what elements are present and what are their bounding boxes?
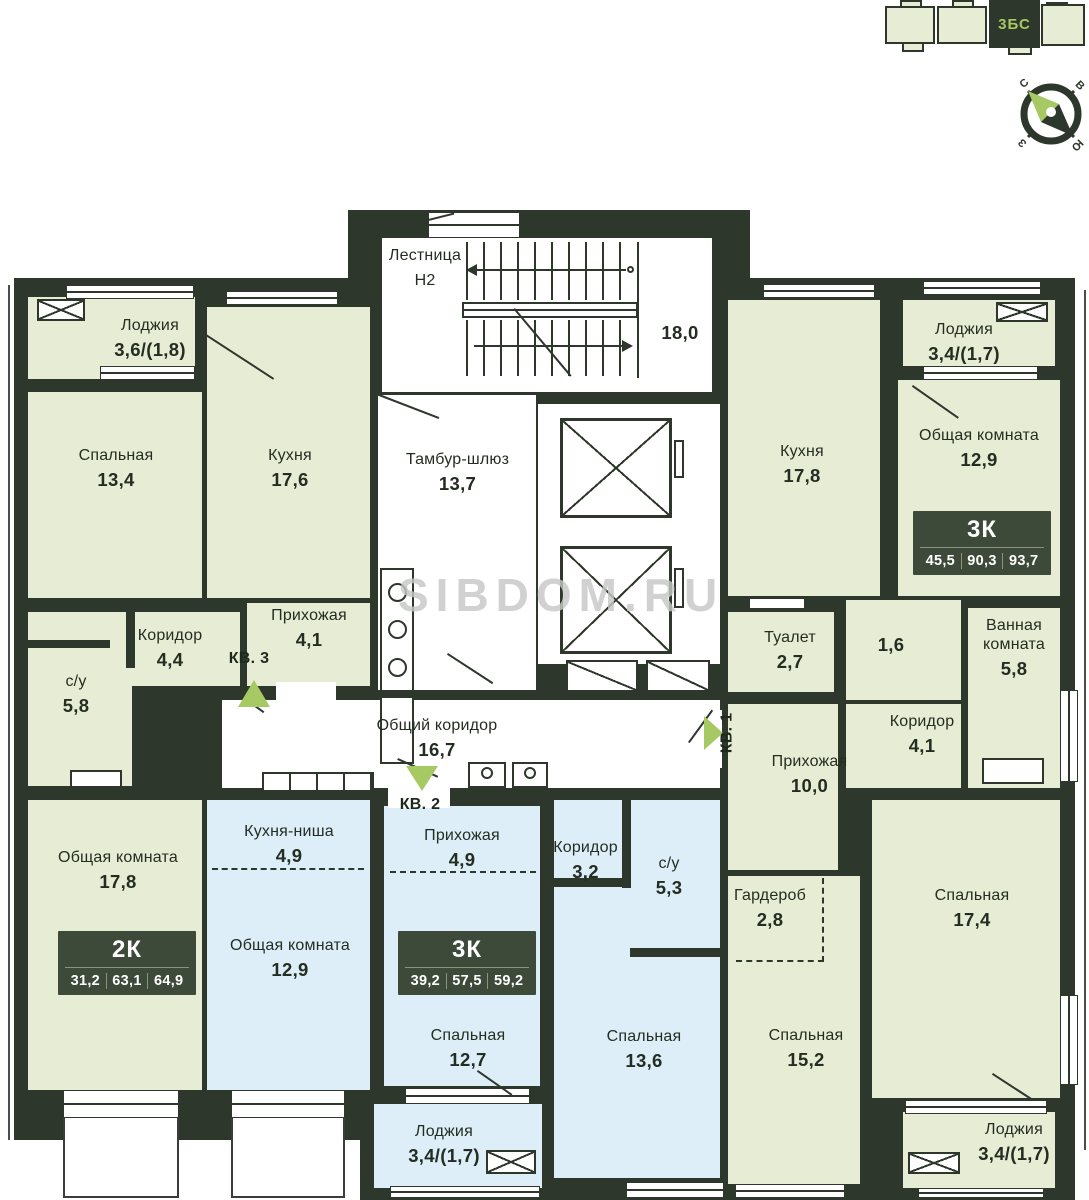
tap-icon	[481, 767, 493, 779]
window	[405, 1088, 530, 1104]
window	[390, 1186, 540, 1198]
building-section-3-active[interactable]: 3БС	[989, 0, 1040, 48]
building-section-1	[885, 6, 935, 44]
balcony-rail	[63, 1118, 179, 1198]
label-kv2-kitchen-niche: Кухня-ниша 4,9	[230, 822, 348, 867]
label-kv1-toilet: Туалет 2,7	[745, 628, 835, 673]
elevator-door-1	[674, 440, 684, 478]
wall	[630, 948, 720, 957]
stair-arrow-origin	[627, 266, 634, 273]
sanitary-fixture-icon	[70, 770, 122, 788]
label-staircase: Лестница Н2	[382, 246, 468, 290]
elevator-cab-1	[560, 418, 672, 518]
label-kv3-kitchen: Кухня 17,6	[240, 446, 340, 491]
window	[905, 1100, 1047, 1114]
compass-label-west: З	[1016, 136, 1029, 149]
sink-icon	[468, 762, 506, 788]
compass-label-south: Ю	[1069, 137, 1086, 152]
label-kv2-hallway: Прихожая 4,9	[402, 826, 522, 871]
vent-shaft-box	[996, 302, 1048, 322]
label-kv3-wc: с/у 5,8	[45, 672, 107, 717]
stair-arrowhead	[622, 340, 633, 352]
stair-direction-arrow	[474, 345, 624, 347]
marker-kv1[interactable]: КВ. 1	[712, 700, 742, 766]
label-kv1-loggia-top: Лоджия 3,4/(1,7)	[908, 320, 1020, 365]
label-kv1-kitchen: Кухня 17,8	[752, 442, 852, 487]
stair-landing	[462, 302, 638, 318]
dashed-partition	[390, 871, 536, 875]
window	[66, 285, 194, 299]
entry-arrow-kv2[interactable]	[406, 766, 438, 791]
compass-label-east: В	[1073, 79, 1087, 93]
label-kv3-hallway: Прихожая 4,1	[248, 606, 370, 651]
window	[100, 366, 195, 380]
site-boundary-line	[1084, 290, 1086, 1150]
balcony-rail	[231, 1118, 345, 1198]
label-kv1-wardrobe: Гардероб 2,8	[722, 886, 818, 931]
label-kv1-hallway: Прихожая 10,0	[752, 752, 867, 797]
stair-flight-upper	[466, 242, 636, 300]
badge-type: 3К	[405, 937, 529, 968]
compass-label-north: С	[1017, 77, 1031, 91]
vent-shaft-box	[908, 1152, 960, 1174]
label-kv1-bathroom: Ванная комната 5,8	[962, 616, 1066, 681]
window	[626, 1182, 724, 1198]
label-kv3-loggia: Лоджия 3,6/(1,8)	[100, 316, 200, 361]
window	[923, 366, 1038, 380]
door-opening-kv3	[276, 682, 336, 700]
marker-kv2[interactable]: КВ. 2	[390, 796, 450, 814]
sanitary-fixture-icon	[982, 758, 1044, 784]
window	[63, 1090, 179, 1118]
label-kv2-loggia: Лоджия 3,4/(1,7)	[388, 1122, 500, 1167]
stove-burner-icon	[388, 658, 407, 677]
label-kv2-wc: с/у 5,3	[638, 854, 700, 899]
sink-icon	[512, 762, 548, 788]
apartment-badge-kv1[interactable]: 3К 45,5 90,3 93,7	[913, 511, 1051, 575]
room-kv3-bedroom	[28, 392, 202, 598]
site-boundary-line	[8, 285, 10, 1140]
building-section-4	[1041, 4, 1085, 46]
label-kv2-corridor: Коридор 3,2	[538, 838, 633, 883]
apartment-badge-kv2[interactable]: 3К 39,2 57,5 59,2	[398, 931, 536, 995]
floorplan-canvas: 3БС С В З Ю	[0, 0, 1089, 1200]
building-locator: 3БС	[878, 0, 1088, 52]
label-kv1-niche: 1,6	[866, 634, 916, 656]
room-kv1-bedroom-right	[872, 800, 1060, 1098]
apartment-badge-kv3[interactable]: 2К 31,2 63,1 64,9	[58, 931, 196, 995]
window	[226, 291, 338, 305]
window	[918, 1188, 1044, 1198]
label-kv1-bedroom-left: Спальная 15,2	[750, 1026, 862, 1071]
dashed-partition	[212, 868, 364, 872]
label-kv2-bedroom-right: Спальная 13,6	[588, 1027, 700, 1072]
badge-areas: 45,5 90,3 93,7	[920, 548, 1044, 569]
label-common-corridor: Общий коридор 16,7	[372, 716, 502, 761]
building-section-tab	[1008, 46, 1032, 55]
label-kv1-loggia-bottom: Лоджия 3,4/(1,7)	[958, 1120, 1070, 1165]
label-staircase-area: 18,0	[642, 318, 718, 344]
label-kv1-living: Общая комната 12,9	[903, 426, 1055, 471]
badge-type: 3К	[920, 517, 1044, 548]
label-kv3-living: Общая комната 17,8	[48, 848, 188, 893]
window	[735, 1184, 845, 1198]
compass-hub	[1046, 107, 1056, 117]
building-section-2	[937, 6, 987, 44]
window	[1060, 690, 1078, 782]
label-kv3-bedroom: Спальная 13,4	[66, 446, 166, 491]
stair-direction-arrow	[474, 269, 626, 271]
stove-burner-icon	[388, 620, 407, 639]
shaft-niche	[566, 660, 638, 692]
compass: С В З Ю	[1013, 76, 1089, 152]
section-badge: 3БС	[998, 16, 1031, 33]
dashed-partition	[888, 430, 892, 548]
entry-arrow-kv3[interactable]	[238, 680, 270, 707]
mailbox-icon	[262, 772, 374, 792]
label-vestibule: Тамбур-шлюз 13,7	[400, 450, 515, 495]
sanitary-fixture-icon	[748, 597, 806, 610]
building-section-tab	[902, 42, 924, 52]
label-kv2-living: Общая комната 12,9	[215, 936, 365, 981]
watermark: SIBDOM.RU	[398, 568, 724, 622]
label-kv1-corridor: Коридор 4,1	[872, 712, 972, 757]
badge-areas: 39,2 57,5 59,2	[405, 968, 529, 989]
window	[231, 1090, 345, 1118]
shaft-niche	[646, 660, 710, 692]
badge-type: 2К	[65, 937, 189, 968]
label-kv1-bedroom-right: Спальная 17,4	[916, 886, 1028, 931]
label-kv2-bedroom-left: Спальная 12,7	[412, 1026, 524, 1071]
vent-shaft-box	[37, 299, 85, 321]
marker-kv3[interactable]: КВ. 3	[217, 650, 281, 668]
window	[763, 284, 875, 298]
window	[1060, 995, 1078, 1085]
tap-icon	[524, 767, 536, 779]
dashed-partition	[263, 599, 360, 603]
badge-areas: 31,2 63,1 64,9	[65, 968, 189, 989]
stair-flight-lower	[466, 320, 636, 376]
window	[923, 281, 1041, 295]
